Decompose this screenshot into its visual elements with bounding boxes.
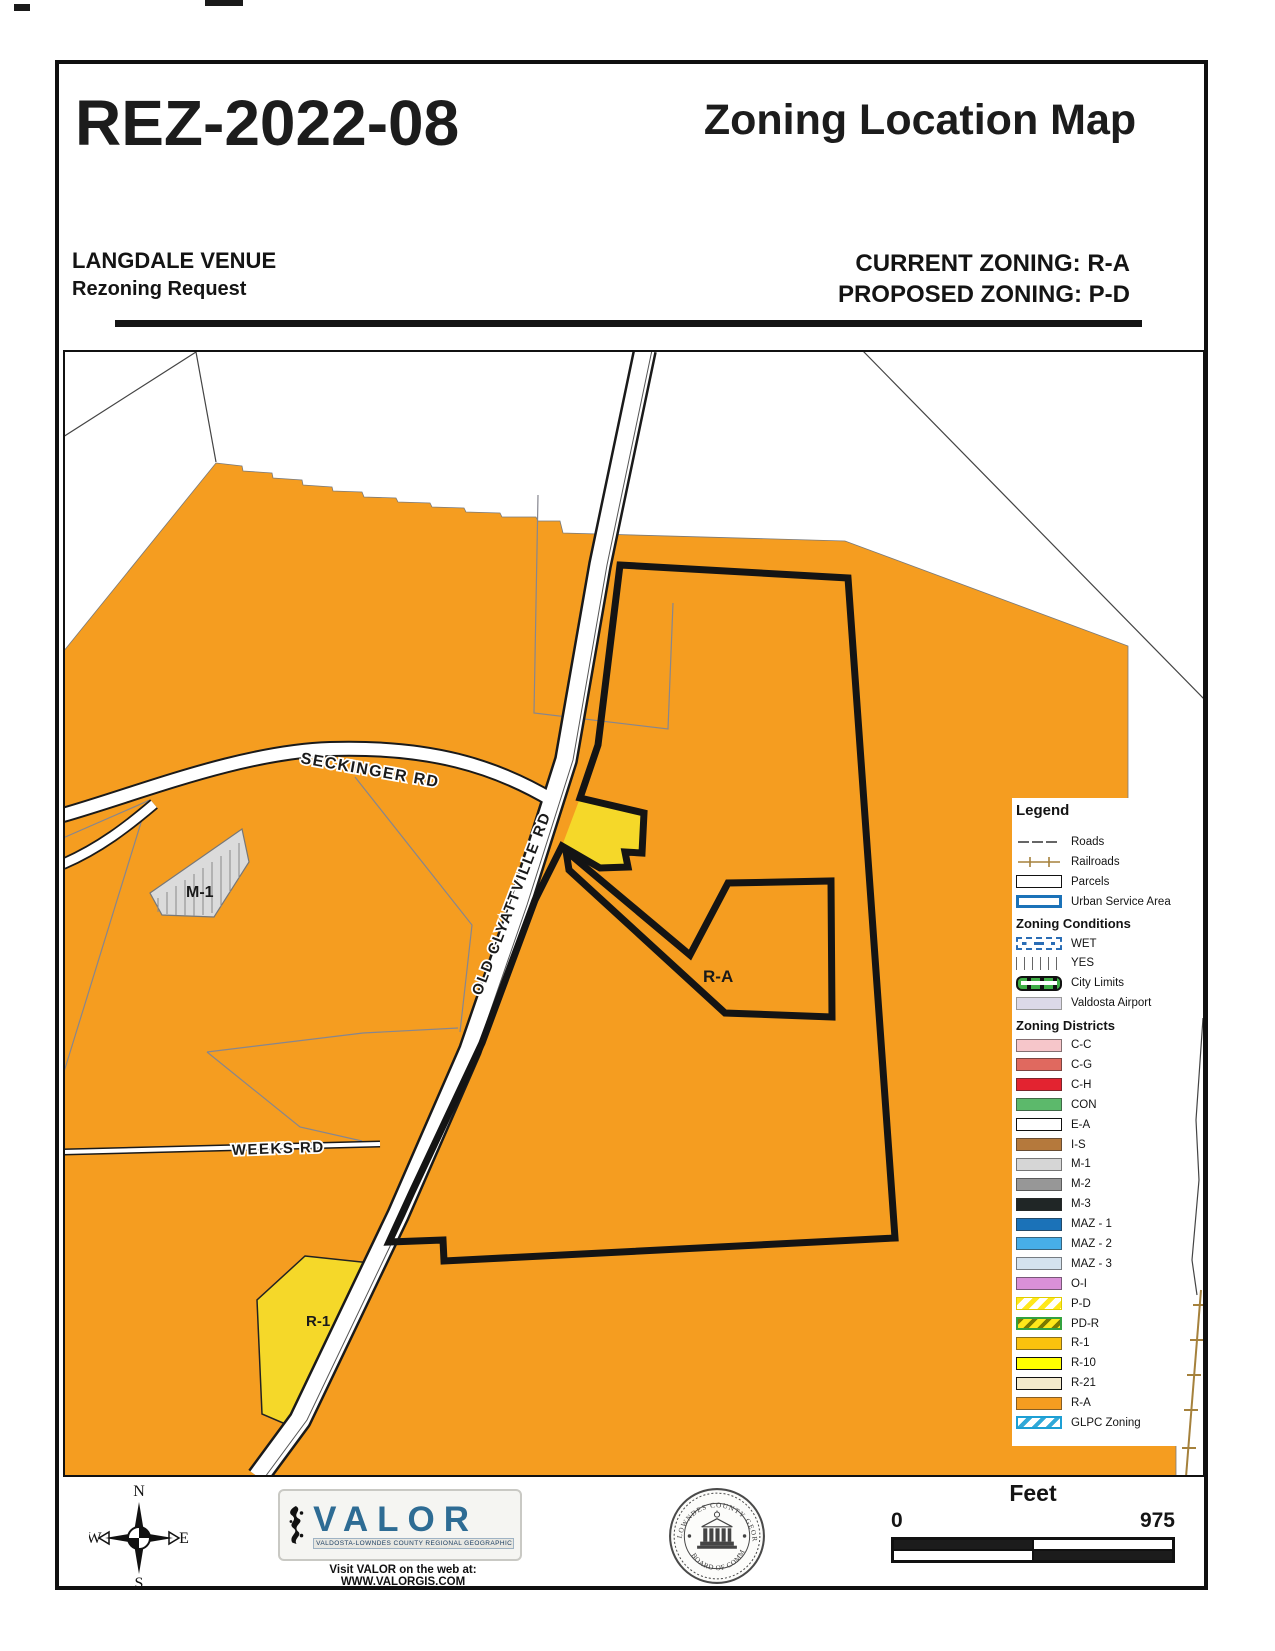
maz-1-swatch	[1016, 1218, 1062, 1231]
legend-label: Valdosta Airport	[1071, 997, 1151, 1009]
legend-title: Legend	[1016, 802, 1182, 824]
r-10-swatch	[1016, 1357, 1062, 1370]
legend-item-railroads: Railroads	[1016, 852, 1182, 872]
applicant-name: LANGDALE VENUE	[72, 248, 276, 274]
legend-item-m-3: M-3	[1016, 1194, 1182, 1214]
legend-item-p-d: P-D	[1016, 1294, 1182, 1314]
legend-item-maz-3: MAZ - 3	[1016, 1254, 1182, 1274]
case-number: REZ-2022-08	[75, 86, 459, 160]
legend-label: Parcels	[1071, 876, 1109, 888]
pd-r-swatch	[1016, 1317, 1062, 1330]
legend-label: PD-R	[1071, 1318, 1099, 1330]
valor-logo: VALOR VALDOSTA-LOWNDES COUNTY REGIONAL G…	[278, 1489, 522, 1561]
legend-label: YES	[1071, 957, 1094, 969]
scan-artifact	[205, 0, 243, 6]
legend-item-urban-service-area: Urban Service Area	[1016, 892, 1182, 912]
maz-3-swatch	[1016, 1257, 1062, 1270]
maz-2-swatch	[1016, 1237, 1062, 1250]
railroad-line-symbol	[1016, 855, 1062, 868]
legend-item-maz-2: MAZ - 2	[1016, 1234, 1182, 1254]
legend-item-pd-r: PD-R	[1016, 1314, 1182, 1334]
ra-zone-label: R-A	[703, 967, 733, 986]
valor-glyph-icon	[286, 1496, 307, 1554]
valor-web-link: Visit VALOR on the web at: WWW.VALORGIS.…	[278, 1564, 528, 1588]
scale-bar-block: Feet 0 975	[885, 1480, 1181, 1563]
legend-label: WET	[1071, 938, 1097, 950]
scale-units-label: Feet	[885, 1480, 1181, 1507]
r-21-swatch	[1016, 1377, 1062, 1390]
legend-item-m-2: M-2	[1016, 1174, 1182, 1194]
legend-item-parcels: Parcels	[1016, 872, 1182, 892]
legend-item-maz-1: MAZ - 1	[1016, 1214, 1182, 1234]
o-i-swatch	[1016, 1277, 1062, 1290]
legend-item-roads: Roads	[1016, 832, 1182, 852]
ra-zone-region	[63, 463, 1176, 1477]
city-limits-swatch	[1016, 976, 1062, 991]
c-c-swatch	[1016, 1039, 1062, 1052]
legend-label: C-H	[1071, 1079, 1091, 1091]
m-3-swatch	[1016, 1198, 1062, 1211]
legend-label: C-G	[1071, 1059, 1092, 1071]
legend-label: C-C	[1071, 1039, 1091, 1051]
legend-label: MAZ - 2	[1071, 1238, 1112, 1250]
c-h-swatch	[1016, 1078, 1062, 1091]
valor-tagline: VALDOSTA-LOWNDES COUNTY REGIONAL GEOGRAP…	[313, 1538, 514, 1549]
m1-zone-label: M-1	[186, 884, 214, 901]
scan-artifact	[14, 4, 30, 11]
legend-label: E-A	[1071, 1119, 1090, 1131]
legend-label: I-S	[1071, 1139, 1086, 1151]
legend-item-c-c: C-C	[1016, 1035, 1182, 1055]
legend-item-m-1: M-1	[1016, 1154, 1182, 1174]
r1-zone-label: R-1	[306, 1313, 330, 1330]
m-1-swatch	[1016, 1158, 1062, 1171]
legend-item-c-h: C-H	[1016, 1075, 1182, 1095]
compass-s-label: S	[135, 1575, 144, 1590]
legend-item-e-a: E-A	[1016, 1115, 1182, 1135]
con-swatch	[1016, 1098, 1062, 1111]
map-sheet: REZ-2022-08 Zoning Location Map LANGDALE…	[55, 60, 1208, 1590]
p-d-swatch	[1016, 1297, 1062, 1310]
current-zoning: CURRENT ZONING: R-A	[660, 248, 1130, 279]
legend-label: R-1	[1071, 1337, 1090, 1349]
scale-bar	[891, 1537, 1175, 1563]
compass-rose-icon: N E S W	[89, 1482, 189, 1590]
compass-n-label: N	[133, 1483, 145, 1500]
roads-line-symbol	[1016, 835, 1062, 848]
legend-label: M-1	[1071, 1158, 1091, 1170]
legend-label: M-3	[1071, 1198, 1091, 1210]
legend-label: M-2	[1071, 1178, 1091, 1190]
legend-item-r-1: R-1	[1016, 1333, 1182, 1353]
c-g-swatch	[1016, 1058, 1062, 1071]
r-a-swatch	[1016, 1397, 1062, 1410]
yes-swatch	[1016, 957, 1062, 970]
wet-swatch	[1016, 937, 1062, 950]
legend-item-o-i: O-I	[1016, 1274, 1182, 1294]
legend-item-yes: YES	[1016, 953, 1182, 973]
m-2-swatch	[1016, 1178, 1062, 1191]
legend-item-r-10: R-10	[1016, 1353, 1182, 1373]
scale-max-label: 975	[1140, 1509, 1175, 1533]
legend-label: R-21	[1071, 1377, 1096, 1389]
legend-item-glpc: GLPC Zoning	[1016, 1413, 1182, 1433]
compass-w-label: W	[89, 1530, 102, 1547]
legend-label: R-10	[1071, 1357, 1096, 1369]
page-title: Zoning Location Map	[700, 96, 1140, 145]
r-1-swatch	[1016, 1337, 1062, 1350]
request-type: Rezoning Request	[72, 278, 246, 301]
legend-label: MAZ - 1	[1071, 1218, 1112, 1230]
parcels-swatch	[1016, 875, 1062, 888]
legend: Legend Roads Railroads Parcels Urban Ser…	[1012, 798, 1182, 1446]
legend-label: CON	[1071, 1099, 1097, 1111]
legend-label: Urban Service Area	[1071, 896, 1171, 908]
e-a-swatch	[1016, 1118, 1062, 1131]
legend-label: R-A	[1071, 1397, 1091, 1409]
county-seal: LOWNDES COUNTY GEORGIA BOARD OF COMMISSI…	[667, 1486, 767, 1586]
proposed-zoning: PROPOSED ZONING: P-D	[660, 279, 1130, 310]
legend-label: City Limits	[1071, 977, 1124, 989]
i-s-swatch	[1016, 1138, 1062, 1151]
valor-name: VALOR	[313, 1502, 514, 1538]
weeks-rd-label: WEEKS RD	[232, 1139, 325, 1159]
legend-item-r-21: R-21	[1016, 1373, 1182, 1393]
legend-item-r-a: R-A	[1016, 1393, 1182, 1413]
legend-label: Roads	[1071, 836, 1104, 848]
legend-item-con: CON	[1016, 1095, 1182, 1115]
zoning-summary: CURRENT ZONING: R-A PROPOSED ZONING: P-D	[660, 248, 1130, 310]
zoning-conditions-title: Zoning Conditions	[1016, 914, 1182, 934]
valdosta-airport-swatch	[1016, 997, 1062, 1010]
compass-e-label: E	[179, 1530, 189, 1547]
legend-label: O-I	[1071, 1278, 1087, 1290]
zoning-districts-title: Zoning Districts	[1016, 1015, 1182, 1035]
legend-item-wet: WET	[1016, 934, 1182, 954]
legend-label: P-D	[1071, 1298, 1091, 1310]
glpc-zoning-swatch	[1016, 1416, 1062, 1429]
urban-service-area-swatch	[1016, 895, 1062, 908]
legend-label: GLPC Zoning	[1071, 1417, 1141, 1429]
scale-min-label: 0	[891, 1509, 903, 1533]
legend-item-c-g: C-G	[1016, 1055, 1182, 1075]
legend-item-i-s: I-S	[1016, 1135, 1182, 1155]
legend-label: Railroads	[1071, 856, 1120, 868]
header-rule	[115, 320, 1142, 327]
legend-label: MAZ - 3	[1071, 1258, 1112, 1270]
legend-item-valdosta-airport: Valdosta Airport	[1016, 993, 1182, 1013]
legend-item-city-limits: City Limits	[1016, 973, 1182, 993]
